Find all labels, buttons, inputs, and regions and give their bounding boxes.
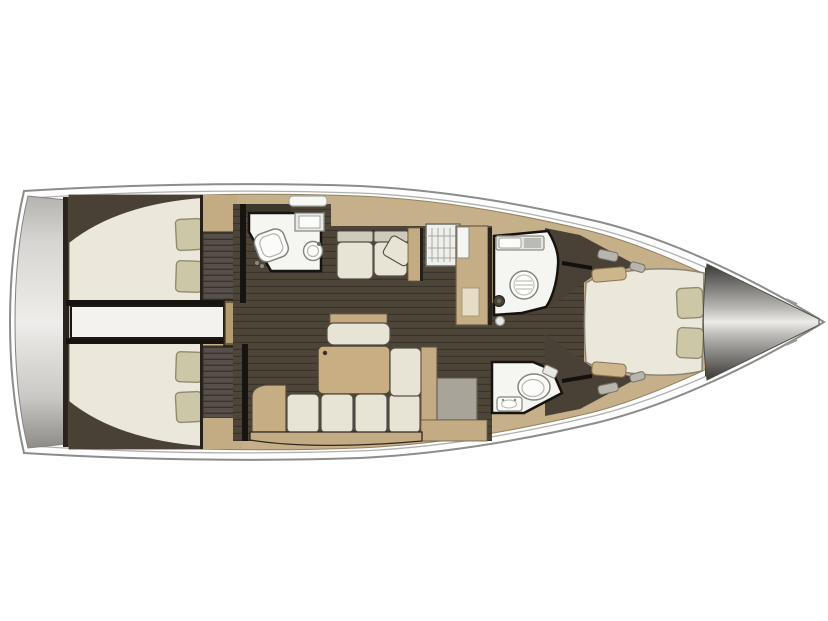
saloon-table-group: [318, 314, 390, 394]
deck-hatch-aft-head: [289, 196, 327, 206]
toilet-room-sink: [497, 397, 522, 411]
aft-head-counter-sink: [299, 216, 320, 228]
shower-sink: [499, 238, 521, 248]
sofa-cushion-2: [321, 394, 353, 433]
bench-back: [330, 314, 387, 323]
aft-head-fitting-2: [260, 264, 264, 268]
sofa-cushion-1: [287, 394, 319, 433]
sofa-corner-back: [390, 348, 421, 396]
anchor-locker: [703, 264, 819, 380]
sofa-cabinet: [421, 347, 437, 420]
galley-counter-edge: [488, 228, 492, 325]
transom-divider: [63, 197, 69, 447]
transom-deck: [15, 196, 66, 448]
sofa-back-rail: [250, 432, 422, 445]
shower-counter-dark: [524, 238, 541, 248]
aft-cabin-port: [66, 195, 242, 306]
bedside-shelf-starboard: [591, 362, 626, 378]
aft-port-pillow-1: [175, 218, 203, 250]
anchor-locker-cone: [703, 264, 819, 380]
aft-head-faucet: [317, 242, 321, 246]
nav-seat: [437, 378, 477, 420]
galley-sink: [457, 227, 469, 258]
shower-mixer-knob: [497, 299, 501, 303]
mast-foot: [496, 317, 505, 326]
forward-pillow-2: [676, 327, 704, 358]
aft-head-fitting-1: [255, 261, 259, 265]
settee-backrest-1: [337, 231, 373, 242]
floorplan-svg: [0, 0, 828, 621]
aft-port-locker-top: [203, 195, 237, 232]
aft-port-pillow-2: [175, 261, 202, 293]
saloon-table: [318, 346, 390, 394]
bulkhead-aft-starboard: [242, 344, 248, 441]
sofa-end-cabinet: [421, 420, 487, 441]
sofa-cushion-4: [389, 394, 420, 433]
boat-floorplan: [0, 0, 828, 621]
toilet-room-faucet-2: [514, 399, 516, 401]
bedside-shelf-port: [592, 267, 627, 283]
engine-bay: [71, 306, 224, 338]
forward-pillow-1: [676, 287, 704, 318]
bulkhead-aft-port: [240, 204, 246, 303]
galley-worktop: [462, 288, 479, 316]
sofa-cushion-3: [355, 394, 387, 433]
toilet-room-faucet-1: [502, 399, 504, 401]
swim-platform: [15, 196, 69, 448]
settee-cushion-1: [337, 242, 373, 279]
sofa-armrest: [252, 385, 286, 432]
settee: [337, 228, 423, 281]
settee-side-panel: [408, 228, 421, 281]
engine-compartment: [71, 306, 224, 338]
galley-stove: [426, 224, 460, 266]
aft-cabin-starboard: [66, 338, 242, 449]
aft-port-wardrobe: [203, 232, 237, 303]
table-fitting: [323, 351, 327, 355]
settee-side-panel-edge: [420, 228, 423, 281]
aft-stbd-pillow-2: [175, 391, 203, 422]
aft-stbd-pillow-1: [175, 352, 202, 383]
forward-berth: [585, 269, 705, 375]
forward-cabin: [585, 249, 710, 395]
center-bench-cushion: [327, 323, 390, 345]
